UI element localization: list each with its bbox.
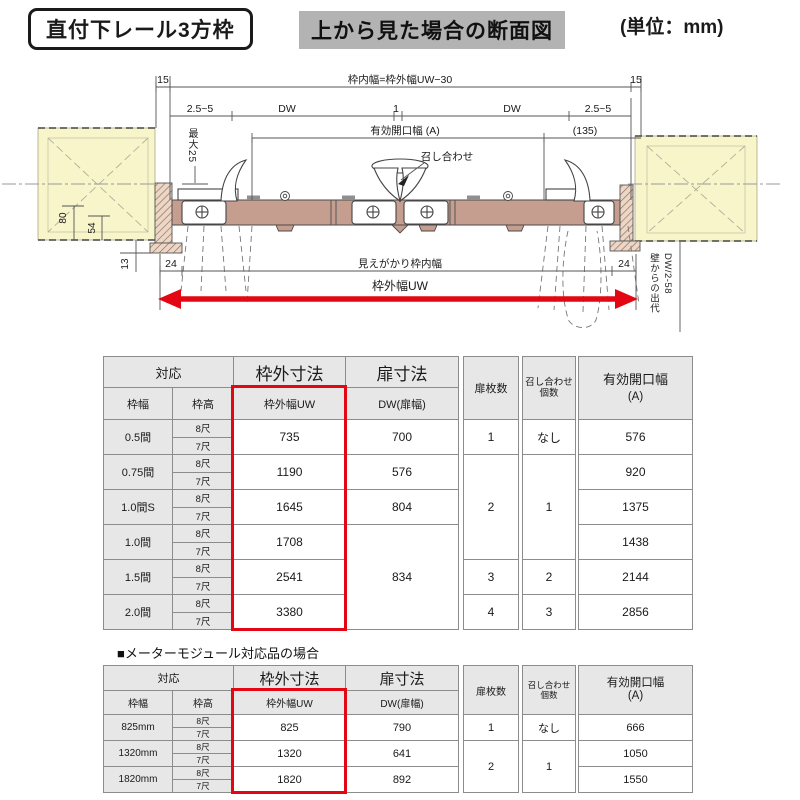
meeting-count-cell: 2 — [523, 560, 576, 595]
dim-dw-left: DW — [278, 103, 296, 115]
header-effective-opening: 有効開口幅 (A) — [579, 357, 693, 420]
outer-width-label: 枠外幅UW — [372, 278, 429, 293]
frame-width-cell: 825mm — [104, 715, 173, 741]
dim-center-gap: 1 — [393, 103, 399, 115]
spec1-row: 0.5間8尺7357001なし576 — [104, 420, 693, 438]
spec1-row: 0.75間8尺119057621920 — [104, 455, 693, 473]
header-meeting-count: 召し合わせ 個数 — [523, 666, 576, 715]
header-effective-line2: (A) — [628, 690, 643, 702]
header-effective-line1: 有効開口幅 — [607, 677, 665, 689]
opening-value-cell: 576 — [579, 420, 693, 455]
dim-wall-protrusion: 壁からの出代 DW/2-58 — [646, 253, 674, 331]
dim-max25: 最大25 — [184, 128, 198, 188]
uw-value-cell: 1645 — [234, 490, 346, 525]
dim-24-left: 24 — [165, 258, 177, 270]
spec-table-2-wrap: 対応 枠外寸法 扉寸法 扉枚数 召し合わせ 個数 有効開口幅 (A) — [103, 665, 693, 793]
dim-13: 13 — [120, 258, 131, 270]
header-correspond: 対応 — [104, 357, 234, 388]
door-count-cell: 4 — [464, 595, 519, 630]
uw-value-cell: 1190 — [234, 455, 346, 490]
frame-height-cell: 8尺 — [173, 420, 234, 438]
dim-inner-width-formula: 枠内幅=枠外幅UW−30 — [348, 73, 453, 86]
uw-value-cell: 3380 — [234, 595, 346, 630]
frame-width-cell: 1.0間 — [104, 525, 173, 560]
dim-24-right: 24 — [618, 258, 630, 270]
dw-value-cell: 834 — [346, 525, 459, 630]
spec2-row: 1820mm8尺18208921550 — [104, 767, 693, 780]
frame-height-cell: 7尺 — [173, 437, 234, 455]
header-outer-dim: 枠外寸法 — [234, 357, 346, 388]
frame-height-cell: 8尺 — [173, 455, 234, 473]
opening-value-cell: 1550 — [579, 767, 693, 793]
rail-stop — [342, 196, 355, 201]
frame-height-cell: 8尺 — [173, 525, 234, 543]
unit-label: (単位：mm) — [620, 12, 723, 39]
frame-width-cell: 1820mm — [104, 767, 173, 793]
frame-width-cell: 1.0間S — [104, 490, 173, 525]
projection-lines — [181, 226, 639, 328]
opening-value-cell: 1050 — [579, 741, 693, 767]
dim-clearance-right: 2.5~5 — [585, 103, 612, 115]
door-count-cell: 1 — [464, 420, 519, 455]
header-door-count: 扉枚数 — [464, 357, 519, 420]
door-count-cell: 3 — [464, 560, 519, 595]
frame-width-cell: 1320mm — [104, 741, 173, 767]
header-row-1: 対応 枠外寸法 扉寸法 扉枚数 召し合わせ 個数 有効開口幅 (A) — [104, 666, 693, 691]
page: 直付下レール3方枠 上から見た場合の断面図 (単位：mm) — [0, 0, 800, 800]
frame-height-cell: 7尺 — [173, 542, 234, 560]
spec2-row: 825mm8尺8257901なし666 — [104, 715, 693, 728]
dim-54: 54 — [87, 222, 98, 234]
dw-value-cell: 790 — [346, 715, 459, 741]
header-meeting-count-line2: 個数 — [540, 690, 557, 700]
dim-clearance-left: 2.5~5 — [187, 103, 214, 115]
header-correspond: 対応 — [104, 666, 234, 691]
dw-value-cell: 700 — [346, 420, 459, 455]
header-dw-door-width: DW(扉幅) — [346, 388, 459, 420]
spec-table-1-wrap: 対応 枠外寸法 扉寸法 扉枚数 召し合わせ 個数 有効開口幅 (A) — [103, 356, 693, 630]
dw-value-cell: 892 — [346, 767, 459, 793]
header-frame-height: 枠高 — [173, 691, 234, 715]
frame-height-cell: 7尺 — [173, 472, 234, 490]
dw-value-cell: 641 — [346, 741, 459, 767]
wall-protrusion-formula: DW/2-58 — [662, 253, 673, 294]
product-title-badge: 直付下レール3方枠 — [28, 8, 253, 50]
spec-table-1: 対応 枠外寸法 扉寸法 扉枚数 召し合わせ 個数 有効開口幅 (A) — [103, 356, 693, 630]
meeting-count-cell: 1 — [523, 455, 576, 560]
header-row-1: 対応 枠外寸法 扉寸法 扉枚数 召し合わせ 個数 有効開口幅 (A) — [104, 357, 693, 388]
frame-height-cell: 8尺 — [173, 767, 234, 780]
door-count-cell: 2 — [464, 455, 519, 560]
meeting-count-cell: なし — [523, 420, 576, 455]
frame-width-cell: 0.5間 — [104, 420, 173, 455]
frame-width-cell: 2.0間 — [104, 595, 173, 630]
header-meeting-count-line1: 召し合わせ — [528, 680, 571, 690]
uw-value-cell: 1820 — [234, 767, 346, 793]
view-title-badge: 上から見た場合の断面図 — [299, 11, 565, 49]
spec1-row: 1.0間8尺17088341438 — [104, 525, 693, 543]
door-count-cell: 1 — [464, 715, 519, 741]
header-frame-width: 枠幅 — [104, 388, 173, 420]
frame-height-cell: 7尺 — [173, 780, 234, 793]
dim-80: 80 — [58, 212, 69, 224]
rail-stop — [247, 196, 260, 201]
spec-table-2: 対応 枠外寸法 扉寸法 扉枚数 召し合わせ 個数 有効開口幅 (A) — [103, 665, 693, 793]
frame-width-cell: 1.5間 — [104, 560, 173, 595]
rail-stop — [467, 196, 480, 201]
frame-height-cell: 8尺 — [173, 715, 234, 728]
header-door-dim: 扉寸法 — [346, 357, 459, 388]
opening-value-cell: 1375 — [579, 490, 693, 525]
header-outer-width-uw: 枠外幅UW — [234, 691, 346, 715]
frame-height-cell: 8尺 — [173, 560, 234, 578]
header-meeting-count-line2: 個数 — [540, 388, 559, 399]
uw-value-cell: 1708 — [234, 525, 346, 560]
opening-value-cell: 666 — [579, 715, 693, 741]
module-heading: ■メーターモジュール対応品の場合 — [117, 643, 319, 662]
meeting-count-cell: なし — [523, 715, 576, 741]
right-wall — [635, 136, 757, 241]
header-frame-width: 枠幅 — [104, 691, 173, 715]
dw-value-cell: 576 — [346, 455, 459, 490]
opening-value-cell: 2144 — [579, 560, 693, 595]
frame-height-cell: 7尺 — [173, 612, 234, 630]
uw-value-cell: 735 — [234, 420, 346, 455]
frame-height-cell: 7尺 — [173, 728, 234, 741]
frame-height-cell: 8尺 — [173, 490, 234, 508]
header-effective-line2: (A) — [628, 391, 643, 403]
dim-effective-opening: 有効開口幅 (A) — [370, 124, 439, 137]
dw-value-cell: 804 — [346, 490, 459, 525]
opening-value-cell: 2856 — [579, 595, 693, 630]
uw-value-cell: 2541 — [234, 560, 346, 595]
header-door-dim: 扉寸法 — [346, 666, 459, 691]
frame-height-cell: 7尺 — [173, 507, 234, 525]
header-door-count: 扉枚数 — [464, 666, 519, 715]
opening-value-cell: 1438 — [579, 525, 693, 560]
frame-height-cell: 8尺 — [173, 741, 234, 754]
header-frame-height: 枠高 — [173, 388, 234, 420]
frame-width-cell: 0.75間 — [104, 455, 173, 490]
dim-135: (135) — [573, 125, 598, 137]
meeting-count-cell: 1 — [523, 741, 576, 793]
dim-visible-inner-width: 見えがかり枠内幅 — [358, 257, 442, 270]
spec2-row: 1320mm8尺1320641211050 — [104, 741, 693, 754]
cross-section-diagram: 15 枠内幅=枠外幅UW−30 15 2.5~5 DW 1 DW 2.5~5 有… — [0, 58, 800, 350]
meeting-count-cell: 3 — [523, 595, 576, 630]
dim-15-right: 15 — [630, 74, 642, 86]
dim-dw-right: DW — [503, 103, 521, 115]
wall-protrusion-text: 壁からの出代 — [648, 253, 659, 313]
header-meeting-count: 召し合わせ 個数 — [523, 357, 576, 420]
header-effective-line1: 有効開口幅 — [603, 372, 668, 387]
uw-value-cell: 1320 — [234, 741, 346, 767]
frame-height-cell: 8尺 — [173, 595, 234, 613]
uw-value-cell: 825 — [234, 715, 346, 741]
frame-height-cell: 7尺 — [173, 754, 234, 767]
header-meeting-count-line1: 召し合わせ — [525, 377, 573, 388]
header-effective-opening: 有効開口幅 (A) — [579, 666, 693, 715]
header-outer-width-uw: 枠外幅UW — [234, 388, 346, 420]
header-dw-door-width: DW(扉幅) — [346, 691, 459, 715]
header-outer-dim: 枠外寸法 — [234, 666, 346, 691]
frame-height-cell: 7尺 — [173, 577, 234, 595]
opening-value-cell: 920 — [579, 455, 693, 490]
door-count-cell: 2 — [464, 741, 519, 793]
dim-15-left: 15 — [157, 74, 169, 86]
meeting-label: 召し合わせ — [421, 150, 474, 163]
spec1-row: 1.0間S8尺16458041375 — [104, 490, 693, 508]
